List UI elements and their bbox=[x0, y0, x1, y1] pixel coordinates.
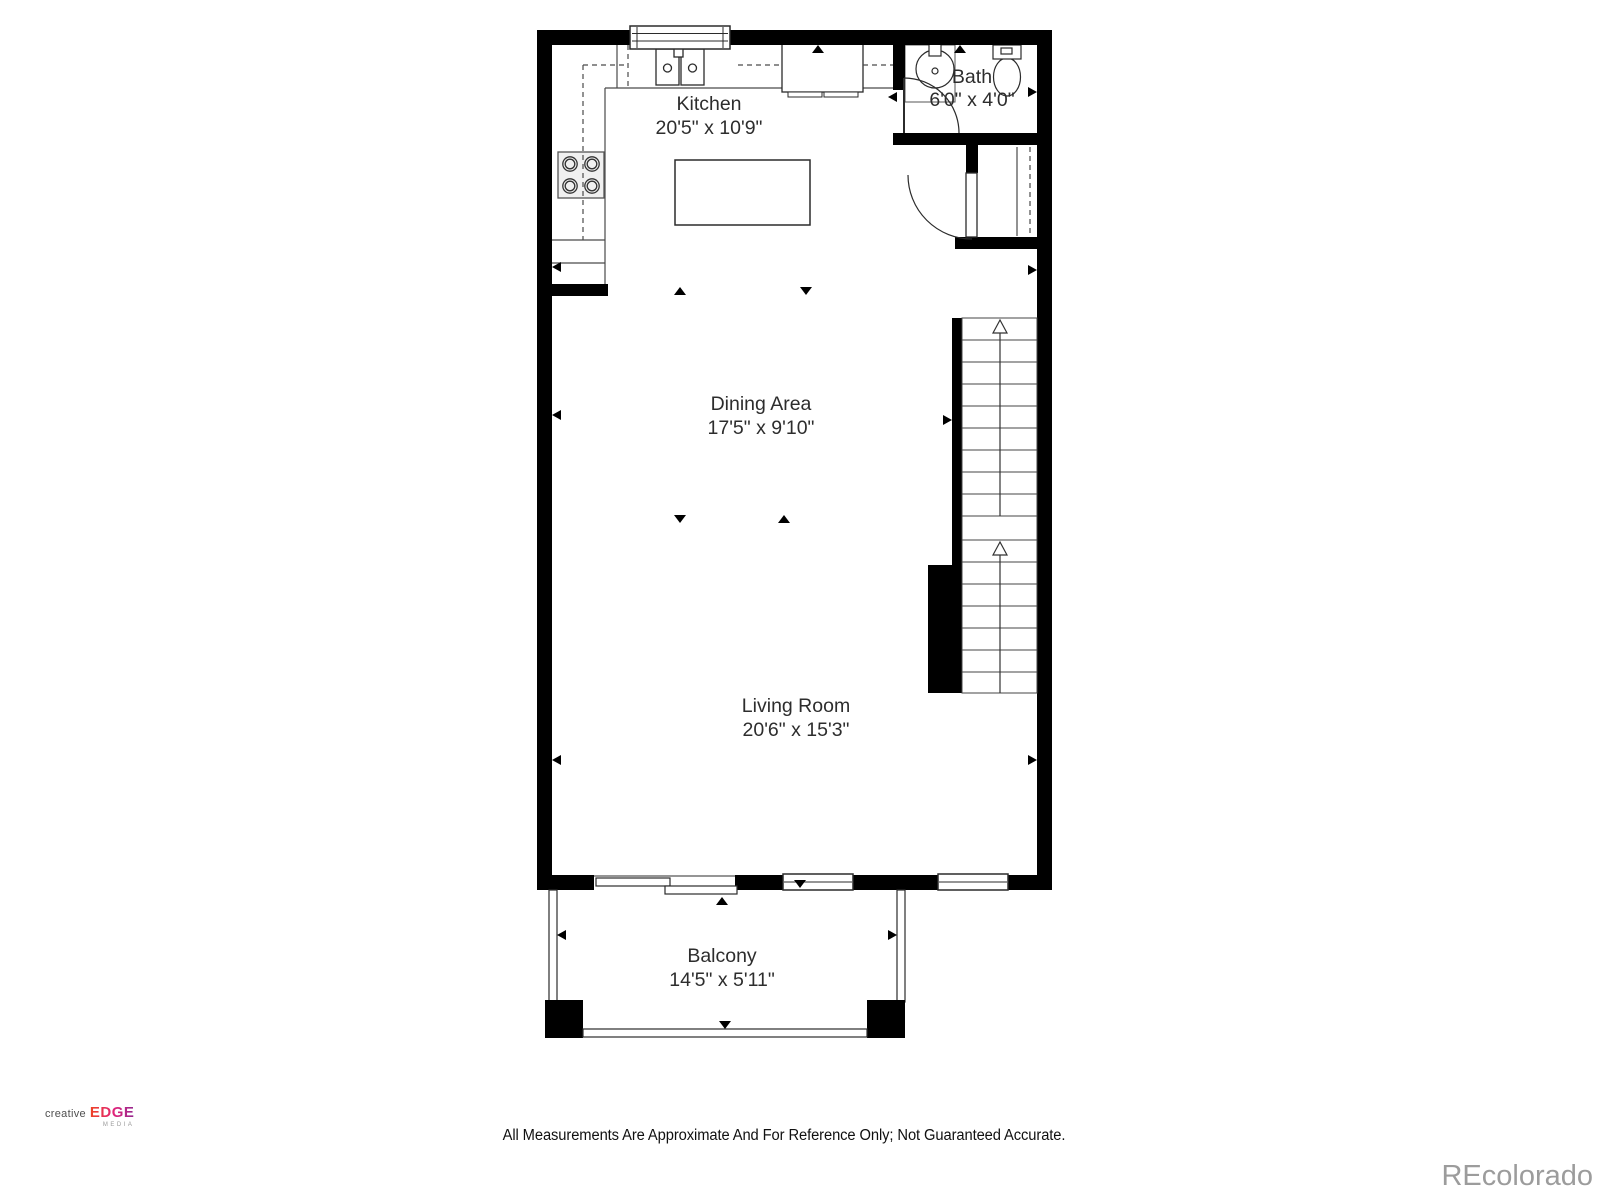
logo-edge-block: EDGE MEDIA bbox=[90, 1104, 135, 1128]
stairs-icon bbox=[928, 318, 1037, 693]
room-dimensions: 17'5" x 9'10" bbox=[708, 416, 815, 440]
windows bbox=[594, 26, 1008, 894]
stove-icon bbox=[558, 152, 604, 198]
logo-word-creative: creative bbox=[45, 1108, 86, 1120]
room-name: Bath bbox=[929, 66, 1014, 89]
room-name: Kitchen bbox=[656, 92, 763, 116]
room-dimensions: 20'6" x 15'3" bbox=[742, 718, 850, 742]
walls bbox=[537, 30, 1052, 890]
room-label-kitchen: Kitchen 20'5" x 10'9" bbox=[656, 92, 763, 140]
room-label-dining-area: Dining Area 17'5" x 9'10" bbox=[708, 392, 815, 440]
living-window-icon bbox=[783, 874, 853, 890]
kitchen-window-icon bbox=[630, 26, 730, 49]
logo-word-edge: EDGE bbox=[90, 1104, 135, 1121]
room-label-living-room: Living Room 20'6" x 15'3" bbox=[742, 694, 850, 742]
creative-edge-logo: creative EDGE MEDIA bbox=[45, 1104, 134, 1128]
floor-plan-page: Kitchen 20'5" x 10'9" Bath 6'0" x 4'0" D… bbox=[0, 0, 1600, 1200]
kitchen-island bbox=[675, 160, 810, 225]
refrigerator-icon bbox=[782, 42, 863, 97]
logo-word-media: MEDIA bbox=[103, 1122, 135, 1128]
closet bbox=[1017, 147, 1030, 236]
room-label-balcony: Balcony 14'5" x 5'11" bbox=[669, 944, 775, 992]
stairs-up-arrows bbox=[993, 320, 1007, 693]
room-label-bath: Bath 6'0" x 4'0" bbox=[929, 66, 1014, 112]
room-dimensions: 20'5" x 10'9" bbox=[656, 116, 763, 140]
measurement-disclaimer: All Measurements Are Approximate And For… bbox=[503, 1127, 1066, 1145]
floor-plan-drawing bbox=[0, 0, 1600, 1200]
room-name: Dining Area bbox=[708, 392, 815, 416]
sliding-door-icon bbox=[594, 876, 737, 894]
room-name: Living Room bbox=[742, 694, 850, 718]
living-window2-icon bbox=[938, 874, 1008, 890]
room-name: Balcony bbox=[669, 944, 775, 968]
recolorado-watermark: REcolorado bbox=[1441, 1160, 1593, 1193]
closet-door-icon bbox=[908, 173, 977, 239]
balcony-railing bbox=[583, 1029, 867, 1037]
room-dimensions: 14'5" x 5'11" bbox=[669, 968, 775, 992]
room-dimensions: 6'0" x 4'0" bbox=[929, 89, 1014, 112]
